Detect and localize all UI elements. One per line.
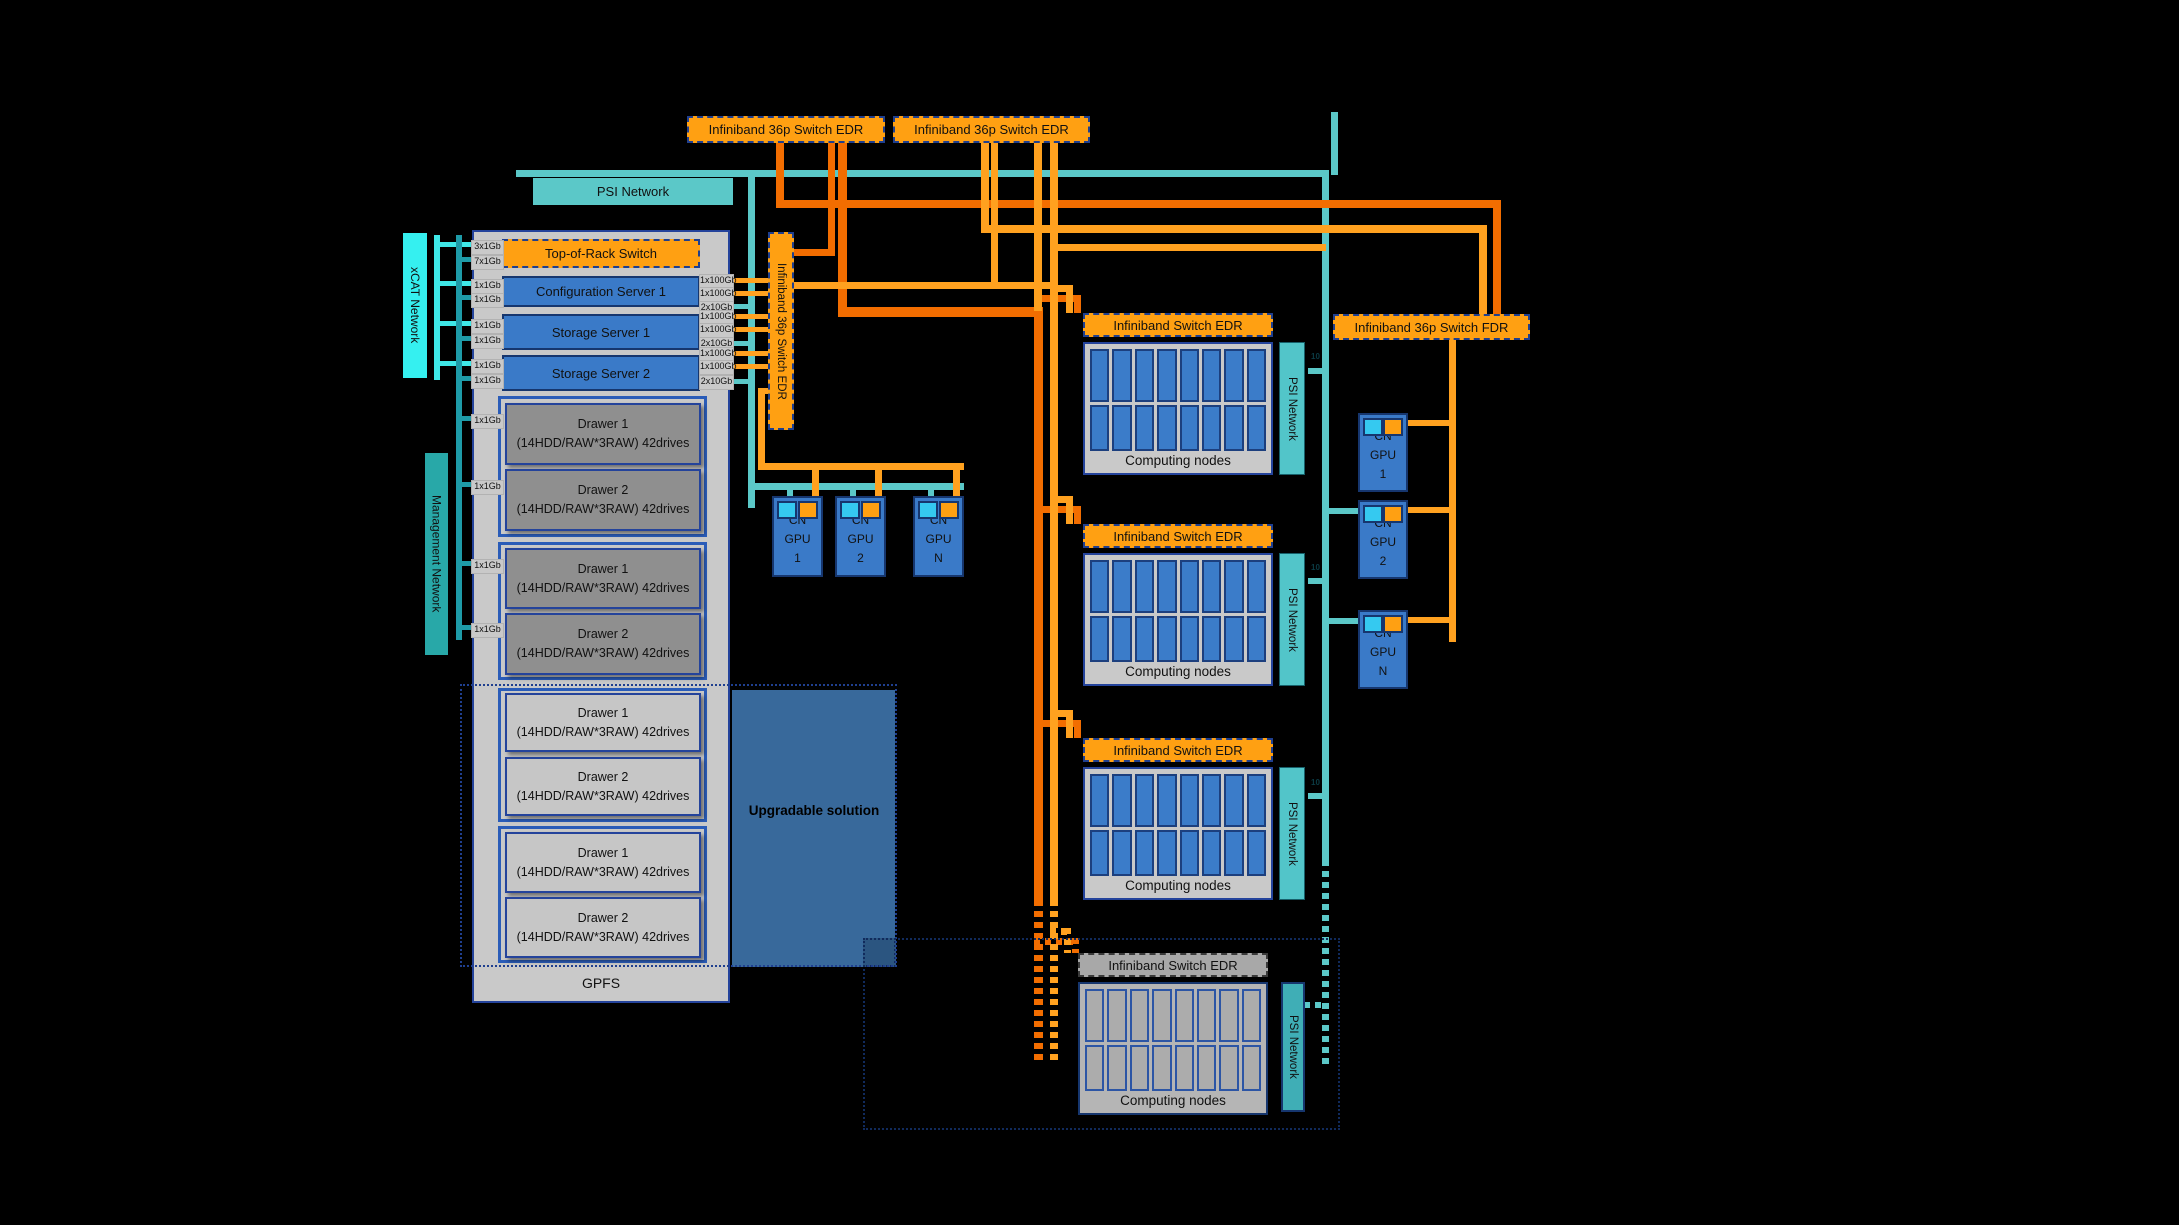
connector-line [1407, 617, 1449, 623]
compute-node-cell [1202, 774, 1221, 827]
xcat-network-text: xCAT Network [408, 267, 422, 343]
connector-line [1308, 368, 1322, 374]
connector-line [1074, 720, 1081, 738]
server-label: Storage Server 1 [552, 325, 650, 340]
connector-line [1066, 285, 1073, 313]
compute-node-cell [1112, 349, 1131, 402]
drawer-1: Drawer 1(14HDD/RAW*3RAW) 42drives [505, 403, 701, 465]
compute-block-2-panel: Computing nodes [1083, 553, 1273, 686]
right-port-label: 1x100Gb [699, 323, 734, 338]
compute-block-1-psi: PSI Network [1279, 342, 1305, 475]
drawer-subtitle: (14HDD/RAW*3RAW) 42drives [517, 928, 690, 947]
compute-node-cell [1157, 774, 1176, 827]
vertical-infiniband-switch-edr: Infiniband 36p Switch EDR [768, 232, 794, 430]
connector-line [758, 463, 964, 470]
ib-port-icon [861, 501, 881, 519]
cn-gpu-right-1: CN GPU 1 [1358, 413, 1408, 492]
compute-node-cell [1135, 616, 1154, 662]
gpu-line: 2 [857, 549, 864, 568]
compute-block-3-psi: PSI Network [1279, 767, 1305, 900]
psi-port-icon [1363, 615, 1383, 633]
right-port-label: 1x100Gb [699, 360, 734, 375]
left-port-label: 1x1Gb [471, 559, 504, 574]
connector-line [828, 143, 835, 256]
compute-node-cell [1224, 405, 1243, 451]
block-switch-label: Infiniband Switch EDR [1113, 743, 1242, 758]
gpu-line: 1 [1380, 465, 1387, 484]
vertical-switch-text: Infiniband 36p Switch EDR [775, 263, 787, 400]
gpu-line: GPU [784, 530, 810, 549]
drawer-title: Drawer 1 [578, 704, 629, 723]
compute-node-cell [1202, 405, 1221, 451]
server-label: Configuration Server 1 [536, 284, 666, 299]
nodes-text: Computing nodes [1125, 453, 1231, 468]
top-infiniband-switch-edr-2: Infiniband 36p Switch EDR [893, 116, 1090, 143]
psi-port-icon [918, 501, 938, 519]
compute-node-cell [1152, 1045, 1171, 1091]
gpu-line: 1 [794, 549, 801, 568]
compute-node-cell [1090, 774, 1109, 827]
storage-server-2: Storage Server 2 [502, 355, 700, 391]
compute-node-cell [1202, 830, 1221, 876]
connector-line [1449, 340, 1456, 642]
left-port-label: 7x1Gb [471, 255, 504, 270]
connector-line [731, 291, 768, 296]
compute-node-cell [1224, 830, 1243, 876]
compute-node-cell [1224, 774, 1243, 827]
connector-line [794, 282, 1056, 289]
drawer-6: Drawer 2(14HDD/RAW*3RAW) 42drives [505, 757, 701, 816]
psi-port-icon [840, 501, 860, 519]
nodes-text: Computing nodes [1125, 878, 1231, 893]
compute-node-cell [1112, 560, 1131, 613]
block-switch-label: Infiniband Switch EDR [1108, 958, 1237, 973]
gpu-line: GPU [1370, 533, 1396, 552]
left-port-label: 1x1Gb [471, 293, 504, 308]
gpfs-label: GPFS [472, 965, 730, 1000]
drawer-5: Drawer 1(14HDD/RAW*3RAW) 42drives [505, 693, 701, 752]
connector-line [758, 388, 765, 469]
upgradable-text: Upgradable solution [900, 1022, 1031, 1037]
compute-node-cell [1130, 989, 1149, 1042]
compute-node-cell [1112, 616, 1131, 662]
connector-line [1074, 295, 1081, 313]
drawer-8: Drawer 2(14HDD/RAW*3RAW) 42drives [505, 897, 701, 958]
connector-line [731, 341, 755, 346]
compute-node-cell [1180, 405, 1199, 451]
right-port-label: 2x10Gb [699, 375, 734, 390]
drawer-title: Drawer 2 [578, 481, 629, 500]
ib-port-icon [1383, 615, 1403, 633]
compute-node-cell [1180, 349, 1199, 402]
connector-line [516, 170, 1329, 177]
compute-node-cell [1157, 616, 1176, 662]
compute-block-4-panel: Computing nodes [1078, 982, 1268, 1115]
fdr-switch-label: Infiniband 36p Switch FDR [1355, 320, 1509, 335]
compute-node-grid [1090, 560, 1266, 659]
connector-line [787, 483, 793, 497]
tor-label: Top-of-Rack Switch [545, 246, 657, 261]
compute-block-2-psi: PSI Network [1279, 553, 1305, 686]
compute-node-cell [1180, 830, 1199, 876]
computing-nodes-label: Computing nodes [1090, 448, 1266, 473]
compute-node-cell [1224, 560, 1243, 613]
compute-node-cell [1090, 616, 1109, 662]
drawer-title: Drawer 2 [578, 768, 629, 787]
gpu-line: GPU [925, 530, 951, 549]
left-port-label: 1x1Gb [471, 374, 504, 389]
upgradable-overlap-corner [863, 938, 896, 967]
compute-node-cell [1247, 349, 1266, 402]
connector-line [953, 463, 960, 497]
compute-block-3-switch: Infiniband Switch EDR [1083, 738, 1273, 762]
configuration-server-1: Configuration Server 1 [502, 276, 700, 307]
compute-node-cell [1202, 349, 1221, 402]
connector-line [1322, 508, 1358, 514]
connector-line [1034, 900, 1043, 1065]
connector-line [731, 379, 755, 384]
cn-gpu-mid-n: CN GPU N [913, 496, 964, 577]
psi-text: PSI Network [1286, 802, 1298, 866]
connector-line [1050, 143, 1058, 900]
compute-node-cell [1157, 405, 1176, 451]
connector-line [812, 463, 819, 497]
gpu-line: N [934, 549, 943, 568]
storage-server-1: Storage Server 1 [502, 314, 700, 350]
psi-port-icon [777, 501, 797, 519]
connector-line [731, 314, 768, 319]
compute-block-1-panel: Computing nodes [1083, 342, 1273, 475]
connector-line [850, 483, 856, 497]
compute-node-cell [1112, 830, 1131, 876]
connector-line [1308, 578, 1322, 584]
ib-port-icon [1383, 418, 1403, 436]
gpu-line: GPU [1370, 643, 1396, 662]
compute-node-cell [1085, 989, 1104, 1042]
psi-network-bus-label: PSI Network [533, 178, 733, 205]
compute-node-cell [1202, 560, 1221, 613]
management-network-box: Management Network [425, 453, 452, 655]
left-port-label: 1x1Gb [471, 334, 504, 349]
upgradable-text: Upgradable solution [749, 803, 880, 818]
compute-node-cell [1247, 560, 1266, 613]
connector-line [1331, 112, 1338, 175]
drawer-title: Drawer 2 [578, 909, 629, 928]
compute-node-cell [1090, 349, 1109, 402]
left-port-label: 1x1Gb [471, 414, 504, 429]
compute-node-grid [1090, 774, 1266, 873]
connector-line [838, 143, 847, 317]
compute-node-cell [1085, 1045, 1104, 1091]
psi-port-icon [1363, 505, 1383, 523]
connector-line [1493, 200, 1501, 314]
drawer-subtitle: (14HDD/RAW*3RAW) 42drives [517, 787, 690, 806]
compute-node-cell [1135, 560, 1154, 613]
compute-node-cell [1242, 989, 1261, 1042]
compute-node-cell [1157, 349, 1176, 402]
block-switch-label: Infiniband Switch EDR [1113, 318, 1242, 333]
compute-node-cell [1112, 774, 1131, 827]
left-port-label: 1x1Gb [471, 623, 504, 638]
upgradable-solution-label-1: Upgradable solution [735, 803, 893, 818]
left-port-label: 3x1Gb [471, 240, 504, 255]
cn-gpu-mid-2: CN GPU 2 [835, 496, 886, 577]
psi-text: PSI Network [1287, 1015, 1299, 1079]
switch-label: Infiniband 36p Switch EDR [914, 122, 1069, 137]
psi-stub-label: 10 [1311, 778, 1320, 787]
compute-node-cell [1180, 774, 1199, 827]
computing-nodes-label: Computing nodes [1090, 659, 1266, 684]
connector-line [1322, 618, 1358, 624]
connector-line [731, 278, 768, 283]
connector-line [1050, 900, 1058, 1065]
drawer-subtitle: (14HDD/RAW*3RAW) 42drives [517, 434, 690, 453]
compute-node-cell [1224, 616, 1243, 662]
compute-node-cell [1130, 1045, 1149, 1091]
connector-line [1304, 1002, 1322, 1008]
compute-node-cell [1090, 405, 1109, 451]
drawer-3: Drawer 1(14HDD/RAW*3RAW) 42drives [505, 548, 701, 609]
drawer-4: Drawer 2(14HDD/RAW*3RAW) 42drives [505, 613, 701, 675]
left-port-label: 1x1Gb [471, 480, 504, 495]
compute-node-cell [1247, 830, 1266, 876]
compute-block-1-switch: Infiniband Switch EDR [1083, 313, 1273, 337]
connector-line [434, 235, 440, 380]
connector-line [1322, 860, 1329, 1067]
connector-line [1066, 496, 1073, 524]
gpu-line: 2 [1380, 552, 1387, 571]
connector-line [1066, 710, 1073, 738]
compute-node-cell [1157, 830, 1176, 876]
compute-node-cell [1107, 989, 1126, 1042]
nodes-text: Computing nodes [1125, 664, 1231, 679]
compute-node-cell [1197, 1045, 1216, 1091]
ib-port-icon [939, 501, 959, 519]
compute-node-cell [1175, 989, 1194, 1042]
compute-block-4-psi: PSI Network [1281, 982, 1305, 1112]
computing-nodes-label: Computing nodes [1090, 873, 1266, 898]
connector-line [776, 143, 784, 204]
compute-node-cell [1180, 560, 1199, 613]
connector-line [981, 143, 989, 231]
compute-block-2-switch: Infiniband Switch EDR [1083, 524, 1273, 548]
left-port-label: 1x1Gb [471, 359, 504, 374]
connector-line [1064, 928, 1071, 953]
architecture-diagram: Infiniband 36p Switch EDR Infiniband 36p… [0, 0, 2179, 1225]
drawer-title: Drawer 1 [578, 415, 629, 434]
cn-gpu-right-2: CN GPU 2 [1358, 500, 1408, 579]
drawer-2: Drawer 2(14HDD/RAW*3RAW) 42drives [505, 469, 701, 531]
compute-node-cell [1107, 1045, 1126, 1091]
ib-port-icon [1383, 505, 1403, 523]
psi-network-text: PSI Network [597, 184, 669, 199]
compute-block-3-panel: Computing nodes [1083, 767, 1273, 900]
compute-node-cell [1219, 989, 1238, 1042]
compute-node-cell [1224, 349, 1243, 402]
psi-stub-label: 10 [1311, 563, 1320, 572]
compute-node-cell [1090, 560, 1109, 613]
nodes-text: Computing nodes [1120, 1093, 1226, 1108]
connector-line [731, 304, 755, 309]
compute-node-cell [1219, 1045, 1238, 1091]
connector-line [731, 364, 768, 369]
compute-node-cell [1242, 1045, 1261, 1091]
compute-node-cell [1180, 616, 1199, 662]
compute-node-cell [1202, 616, 1221, 662]
psi-port-icon [1363, 418, 1383, 436]
drawer-title: Drawer 1 [578, 560, 629, 579]
psi-text: PSI Network [1286, 377, 1298, 441]
drawer-title: Drawer 1 [578, 844, 629, 863]
computing-nodes-label: Computing nodes [1085, 1088, 1261, 1113]
connector-line [731, 327, 768, 332]
compute-node-cell [1247, 616, 1266, 662]
drawer-subtitle: (14HDD/RAW*3RAW) 42drives [517, 644, 690, 663]
compute-node-grid [1090, 349, 1266, 448]
compute-node-cell [1135, 774, 1154, 827]
compute-node-cell [1175, 1045, 1194, 1091]
left-port-label: 1x1Gb [471, 279, 504, 294]
compute-node-cell [1135, 349, 1154, 402]
drawer-subtitle: (14HDD/RAW*3RAW) 42drives [517, 723, 690, 742]
ib-port-icon [798, 501, 818, 519]
management-network-text: Management Network [430, 495, 444, 612]
compute-node-cell [1247, 774, 1266, 827]
compute-node-cell [1247, 405, 1266, 451]
connector-line [928, 483, 934, 497]
block-switch-label: Infiniband Switch EDR [1113, 529, 1242, 544]
drawer-7: Drawer 1(14HDD/RAW*3RAW) 42drives [505, 832, 701, 893]
switch-label: Infiniband 36p Switch EDR [709, 122, 864, 137]
right-port-label: 1x100Gb [699, 287, 734, 302]
server-label: Storage Server 2 [552, 366, 650, 381]
top-infiniband-switch-edr-1: Infiniband 36p Switch EDR [687, 116, 885, 143]
psi-stub-label: 10 [1311, 352, 1320, 361]
compute-node-cell [1112, 405, 1131, 451]
drawer-subtitle: (14HDD/RAW*3RAW) 42drives [517, 579, 690, 598]
compute-block-4-switch: Infiniband Switch EDR [1078, 953, 1268, 977]
connector-line [794, 249, 835, 256]
connector-line [1072, 938, 1079, 953]
compute-node-cell [1197, 989, 1216, 1042]
connector-line [991, 143, 998, 287]
cn-gpu-right-n: CN GPU N [1358, 610, 1408, 689]
connector-line [1407, 420, 1449, 426]
compute-node-cell [1157, 560, 1176, 613]
compute-node-grid [1085, 989, 1261, 1088]
drawer-title: Drawer 2 [578, 625, 629, 644]
connector-line [1308, 793, 1322, 799]
connector-line [1034, 307, 1043, 900]
cn-gpu-mid-1: CN GPU 1 [772, 496, 823, 577]
connector-line [838, 307, 1043, 317]
infiniband-36p-switch-fdr: Infiniband 36p Switch FDR [1333, 314, 1530, 340]
connector-line [875, 463, 882, 497]
connector-line [731, 351, 768, 356]
gpu-line: N [1379, 662, 1388, 681]
drawer-subtitle: (14HDD/RAW*3RAW) 42drives [517, 863, 690, 882]
compute-node-cell [1152, 989, 1171, 1042]
compute-node-cell [1135, 405, 1154, 451]
left-port-label: 1x1Gb [471, 319, 504, 334]
upgradable-solution-label-2: Upgradable solution [900, 1022, 1070, 1037]
compute-node-cell [1090, 830, 1109, 876]
gpfs-text: GPFS [582, 975, 620, 991]
connector-line [1050, 244, 1326, 251]
connector-line [1479, 225, 1487, 314]
upgradable-solution-box-1 [732, 690, 895, 967]
connector-line [776, 200, 1501, 208]
connector-line [1074, 506, 1081, 524]
gpu-line: GPU [1370, 446, 1396, 465]
psi-text: PSI Network [1286, 588, 1298, 652]
top-of-rack-switch: Top-of-Rack Switch [502, 239, 700, 268]
connector-line [1407, 507, 1449, 513]
xcat-network-box: xCAT Network [403, 233, 427, 378]
connector-line [1322, 170, 1329, 860]
gpu-line: GPU [847, 530, 873, 549]
compute-node-cell [1135, 830, 1154, 876]
drawer-subtitle: (14HDD/RAW*3RAW) 42drives [517, 500, 690, 519]
